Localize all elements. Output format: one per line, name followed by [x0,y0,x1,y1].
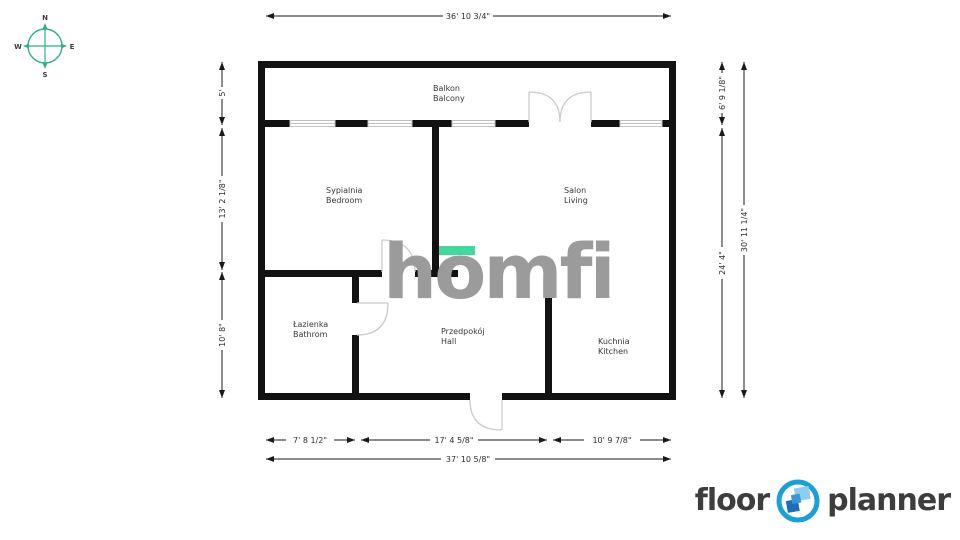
wall-outer-bottom-right [502,393,676,400]
wall-outer-right [669,61,676,400]
compass-rose: N S W E [14,14,74,79]
compass-south-tip [43,63,48,69]
dim-bottom-bathroom: 7' 8 1/2" [293,436,327,445]
dim-bottom-total: 37' 10 5/8" [446,455,490,464]
dim-left-bedroom: 13' 2 1/8" [218,179,227,218]
window [620,121,662,127]
entrance-door [470,400,502,430]
dim-right-interior: 24' 4" [718,251,727,275]
compass-label-w: W [14,43,22,51]
compass-label-n: N [42,14,48,22]
window [290,121,335,127]
floorplanner-word-planner: planner [827,486,950,516]
wall-balcony-seg [662,120,670,127]
wall-balcony-seg [265,120,290,127]
wall-outer-top [258,61,676,68]
homfi-letter-h: h [383,227,434,316]
dim-bottom-kitchen: 10' 9 7/8" [592,436,631,445]
dim-bottom-hall: 17' 4 5/8" [434,436,473,445]
room-label-kitchen-pl: Kuchnia [598,337,630,346]
floorplanner-icon [776,479,820,523]
room-label-bathroom-en: Bathrom [293,330,328,339]
room-label-bedroom-en: Bedroom [326,196,362,205]
dim-right-balcony: 6' 9 1/8" [718,76,727,110]
window [368,121,412,127]
room-label-living-pl: Salon [564,186,586,195]
compass-label-s: S [42,71,47,79]
wall-outer-bottom-left [258,393,470,400]
floorplanner-logo: floor planner [695,479,950,523]
room-label-bedroom-pl: Sypialnia [326,186,363,195]
compass-north-tip [43,23,48,29]
dim-left-bathroom: 10' 8" [218,323,227,347]
room-label-hall-en: Hall [441,337,456,346]
wall-balcony-seg [591,120,620,127]
balcony-double-door [529,92,591,122]
window [452,121,495,127]
wall-bedroom-south [265,270,382,277]
room-label-balcony-pl: Balkon [433,84,460,93]
compass-east-tip [61,44,67,49]
floorplan-page: N S W E [0,0,960,540]
room-label-bathroom-pl: Łazienka [292,320,328,329]
wall-balcony-seg [335,120,368,127]
wall-outer-left [258,61,265,400]
dim-right-total: 30' 11 1/4" [740,208,749,252]
compass-west-tip [23,44,29,49]
homfi-letter-o: o [434,227,483,316]
room-label-balcony-en: Balcony [433,94,465,103]
wall-bathroom-east-lower [352,335,359,393]
floorplanner-word-floor: floor [695,486,769,516]
dim-left-balcony: 5' [218,89,227,96]
room-label-living-en: Living [564,196,588,205]
wall-balcony-seg [495,120,529,127]
room-label-hall-pl: Przedpokój [441,326,485,336]
dim-top-total: 36' 10 3/4" [446,12,490,21]
homfi-accent-bar [439,246,475,255]
wall-balcony-seg [412,120,452,127]
wall-bathroom-east-upper [352,270,359,303]
compass-label-e: E [70,43,75,51]
homfi-letters-mfi: mfi [483,227,612,316]
room-label-kitchen-en: Kitchen [598,347,628,356]
homfi-watermark: homfi [383,234,613,310]
